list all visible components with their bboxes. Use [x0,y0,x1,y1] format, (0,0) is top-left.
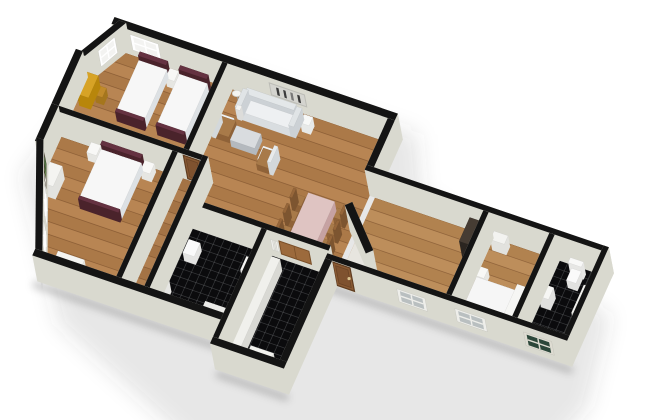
front-door-knob [347,277,350,280]
floorplan-svg [0,0,650,420]
bedroom2-window-2-transom [45,231,46,250]
bedroom2-angled-wall-top [35,137,43,251]
floorplan-3d-render [0,0,650,420]
